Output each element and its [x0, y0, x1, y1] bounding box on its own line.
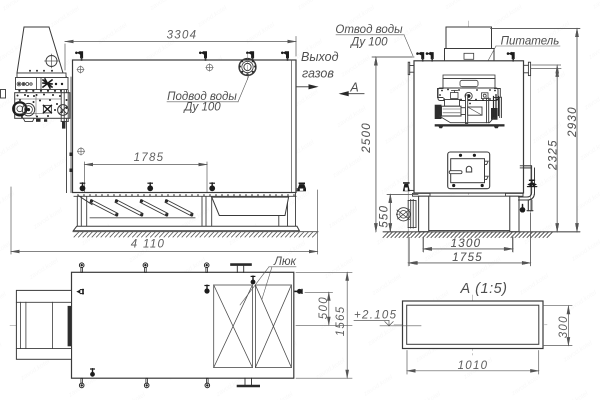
svg-text:550: 550 — [379, 205, 391, 228]
svg-text:Ду 100: Ду 100 — [349, 37, 388, 49]
svg-text:Люк: Люк — [273, 256, 297, 268]
svg-text:1010: 1010 — [458, 360, 489, 372]
svg-text:500: 500 — [318, 296, 330, 319]
svg-text:1785: 1785 — [134, 152, 165, 164]
svg-text:1300: 1300 — [451, 238, 482, 250]
svg-text:Питатель: Питатель — [501, 35, 560, 47]
svg-text:А: А — [349, 81, 358, 95]
svg-text:2500: 2500 — [361, 122, 373, 154]
svg-text:1755: 1755 — [452, 252, 483, 264]
svg-text:Ду 100: Ду 100 — [182, 102, 221, 114]
svg-text:2325: 2325 — [547, 139, 559, 171]
svg-text:газов: газов — [302, 67, 334, 81]
svg-text:3304: 3304 — [167, 30, 198, 42]
svg-text:+2.105: +2.105 — [354, 309, 397, 321]
svg-text:2930: 2930 — [567, 106, 579, 138]
svg-text:4 110: 4 110 — [131, 239, 165, 251]
svg-text:Отвод воды: Отвод воды — [335, 24, 403, 36]
svg-text:300: 300 — [558, 315, 570, 338]
svg-text:1565: 1565 — [335, 306, 347, 337]
svg-text:А (1:5): А (1:5) — [459, 281, 507, 297]
svg-text:Выход: Выход — [301, 50, 339, 64]
